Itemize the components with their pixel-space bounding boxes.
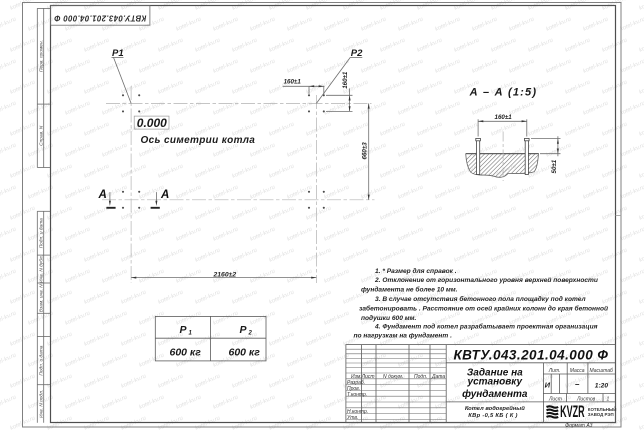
svg-text:kotel-kv.ru: kotel-kv.ru [120,289,148,306]
svg-text:kotel-kv.ru: kotel-kv.ru [194,247,222,264]
svg-text:kotel-kv.ru: kotel-kv.ru [286,352,314,369]
svg-text:Масштаб: Масштаб [590,368,614,374]
svg-text:kotel-kv.ru: kotel-kv.ru [323,16,351,33]
svg-text:Р: Р [180,324,188,336]
svg-text:kotel-kv.ru: kotel-kv.ru [83,373,111,390]
svg-text:Подп. и дата: Подп. и дата [38,345,44,375]
svg-text:kotel-kv.ru: kotel-kv.ru [83,121,111,138]
svg-text:kotel-kv.ru: kotel-kv.ru [212,16,240,33]
svg-text:kotel-kv.ru: kotel-kv.ru [212,184,240,201]
svg-text:kotel-kv.ru: kotel-kv.ru [638,331,644,348]
svg-text:kotel-kv.ru: kotel-kv.ru [249,184,277,201]
svg-text:kotel-kv.ru: kotel-kv.ru [268,121,296,138]
svg-text:kotel-kv.ru: kotel-kv.ru [83,37,111,54]
svg-text:kotel-kv.ru: kotel-kv.ru [64,226,92,243]
svg-text:kotel-kv.ru: kotel-kv.ru [527,121,555,138]
svg-text:600 кг: 600 кг [229,346,261,358]
svg-text:ЗАВОД РЭП: ЗАВОД РЭП [588,412,614,417]
svg-text:kotel-kv.ru: kotel-kv.ru [323,352,351,369]
svg-text:kotel-kv.ru: kotel-kv.ru [0,226,18,243]
svg-text:2160±2: 2160±2 [213,272,237,279]
svg-text:kotel-kv.ru: kotel-kv.ru [157,247,185,264]
svg-text:kotel-kv.ru: kotel-kv.ru [175,100,203,117]
svg-text:660±3: 660±3 [361,142,368,160]
svg-text:kotel-kv.ru: kotel-kv.ru [138,268,166,285]
svg-text:Перв. примен.: Перв. примен. [38,40,44,72]
svg-text:kotel-kv.ru: kotel-kv.ru [268,37,296,54]
svg-text:kotel-kv.ru: kotel-kv.ru [638,415,644,430]
svg-text:kotel-kv.ru: kotel-kv.ru [471,226,499,243]
svg-text:kotel-kv.ru: kotel-kv.ru [453,205,481,222]
svg-text:kotel-kv.ru: kotel-kv.ru [268,289,296,306]
svg-text:kotel-kv.ru: kotel-kv.ru [434,184,462,201]
svg-text:kotel-kv.ru: kotel-kv.ru [175,16,203,33]
svg-text:kotel-kv.ru: kotel-kv.ru [9,373,37,390]
svg-text:kotel-kv.ru: kotel-kv.ru [638,37,644,54]
svg-text:kotel-kv.ru: kotel-kv.ru [564,79,592,96]
svg-text:kotel-kv.ru: kotel-kv.ru [249,100,277,117]
svg-text:kotel-kv.ru: kotel-kv.ru [323,100,351,117]
svg-text:Формат А3: Формат А3 [565,423,593,429]
svg-text:kotel-kv.ru: kotel-kv.ru [582,16,610,33]
svg-text:kotel-kv.ru: kotel-kv.ru [638,163,644,180]
svg-text:kotel-kv.ru: kotel-kv.ru [120,247,148,264]
svg-text:kotel-kv.ru: kotel-kv.ru [64,310,92,327]
svg-text:КВр -0,5 КБ ( К ): КВр -0,5 КБ ( К ) [468,413,518,419]
svg-text:kotel-kv.ru: kotel-kv.ru [9,289,37,306]
svg-text:kotel-kv.ru: kotel-kv.ru [453,37,481,54]
svg-text:kotel-kv.ru: kotel-kv.ru [101,352,129,369]
svg-text:kotel-kv.ru: kotel-kv.ru [0,184,18,201]
svg-text:Ось симетрии котла: Ось симетрии котла [141,135,256,146]
svg-text:kotel-kv.ru: kotel-kv.ru [508,142,536,159]
svg-text:kotel-kv.ru: kotel-kv.ru [490,247,518,264]
svg-text:kotel-kv.ru: kotel-kv.ru [268,247,296,264]
svg-text:А: А [160,189,169,201]
svg-text:kotel-kv.ru: kotel-kv.ru [9,205,37,222]
svg-text:kotel-kv.ru: kotel-kv.ru [490,205,518,222]
svg-text:kotel-kv.ru: kotel-kv.ru [416,121,444,138]
svg-text:Котел водогрейный: Котел водогрейный [465,405,525,412]
svg-text:kotel-kv.ru: kotel-kv.ru [360,226,388,243]
svg-text:kotel-kv.ru: kotel-kv.ru [64,184,92,201]
svg-text:1: 1 [189,331,193,337]
svg-text:kotel-kv.ru: kotel-kv.ru [323,142,351,159]
svg-text:kotel-kv.ru: kotel-kv.ru [360,184,388,201]
svg-text:kotel-kv.ru: kotel-kv.ru [231,373,259,390]
svg-text:kotel-kv.ru: kotel-kv.ru [0,58,18,75]
svg-text:kotel-kv.ru: kotel-kv.ru [564,205,592,222]
svg-text:kotel-kv.ru: kotel-kv.ru [582,100,610,117]
svg-text:kotel-kv.ru: kotel-kv.ru [434,226,462,243]
svg-text:kotel-kv.ru: kotel-kv.ru [360,58,388,75]
svg-text:Взам. инв. N: Взам. инв. N [38,284,44,312]
svg-text:kotel-kv.ru: kotel-kv.ru [175,226,203,243]
svg-text:–: – [575,380,580,389]
svg-text:kotel-kv.ru: kotel-kv.ru [619,394,644,411]
svg-text:kotel-kv.ru: kotel-kv.ru [138,226,166,243]
svg-text:kotel-kv.ru: kotel-kv.ru [397,58,425,75]
svg-text:kotel-kv.ru: kotel-kv.ru [305,331,333,348]
svg-text:kotel-kv.ru: kotel-kv.ru [453,247,481,264]
svg-text:kotel-kv.ru: kotel-kv.ru [453,331,481,348]
svg-text:фундамента: фундамента [462,388,528,400]
svg-text:kotel-kv.ru: kotel-kv.ru [434,100,462,117]
svg-text:Листов: Листов [576,396,596,402]
svg-text:фундамента не более 10 мм.: фундамента не более 10 мм. [361,286,458,294]
svg-text:kotel-kv.ru: kotel-kv.ru [101,226,129,243]
svg-text:kotel-kv.ru: kotel-kv.ru [360,16,388,33]
svg-text:kotel-kv.ru: kotel-kv.ru [434,394,462,411]
svg-text:kotel-kv.ru: kotel-kv.ru [379,247,407,264]
svg-text:kotel-kv.ru: kotel-kv.ru [120,205,148,222]
svg-text:kotel-kv.ru: kotel-kv.ru [360,100,388,117]
svg-text:kotel-kv.ru: kotel-kv.ru [175,268,203,285]
svg-text:kotel-kv.ru: kotel-kv.ru [619,184,644,201]
svg-text:kotel-kv.ru: kotel-kv.ru [416,163,444,180]
svg-text:kotel-kv.ru: kotel-kv.ru [564,247,592,264]
svg-text:kotel-kv.ru: kotel-kv.ru [397,142,425,159]
svg-text:1. * Размер для справок .: 1. * Размер для справок . [375,267,457,275]
svg-text:kotel-kv.ru: kotel-kv.ru [619,16,644,33]
svg-text:kotel-kv.ru: kotel-kv.ru [342,163,370,180]
svg-text:1: 1 [607,396,610,402]
svg-text:kotel-kv.ru: kotel-kv.ru [397,226,425,243]
svg-text:kotel-kv.ru: kotel-kv.ru [638,289,644,306]
svg-text:kotel-kv.ru: kotel-kv.ru [582,142,610,159]
svg-text:50±1: 50±1 [551,159,558,173]
svg-text:kotel-kv.ru: kotel-kv.ru [9,121,37,138]
svg-text:kotel-kv.ru: kotel-kv.ru [305,79,333,96]
svg-text:kotel-kv.ru: kotel-kv.ru [397,100,425,117]
svg-text:Инв. N дубл.: Инв. N дубл. [38,255,44,283]
svg-text:KVZR: KVZR [560,403,585,421]
svg-text:kotel-kv.ru: kotel-kv.ru [231,205,259,222]
svg-text:kotel-kv.ru: kotel-kv.ru [9,331,37,348]
svg-text:kotel-kv.ru: kotel-kv.ru [305,247,333,264]
svg-text:kotel-kv.ru: kotel-kv.ru [434,58,462,75]
svg-text:kotel-kv.ru: kotel-kv.ru [120,331,148,348]
svg-text:kotel-kv.ru: kotel-kv.ru [157,205,185,222]
svg-text:kotel-kv.ru: kotel-kv.ru [564,163,592,180]
svg-text:kotel-kv.ru: kotel-kv.ru [360,352,388,369]
svg-text:kotel-kv.ru: kotel-kv.ru [286,142,314,159]
svg-text:kotel-kv.ru: kotel-kv.ru [490,163,518,180]
svg-text:kotel-kv.ru: kotel-kv.ru [268,331,296,348]
svg-text:kotel-kv.ru: kotel-kv.ru [212,58,240,75]
svg-text:kotel-kv.ru: kotel-kv.ru [416,205,444,222]
svg-text:А: А [98,189,107,201]
svg-text:kotel-kv.ru: kotel-kv.ru [9,163,37,180]
svg-text:kotel-kv.ru: kotel-kv.ru [564,331,592,348]
svg-text:kotel-kv.ru: kotel-kv.ru [508,226,536,243]
svg-text:kotel-kv.ru: kotel-kv.ru [416,37,444,54]
svg-text:kotel-kv.ru: kotel-kv.ru [305,163,333,180]
svg-text:kotel-kv.ru: kotel-kv.ru [397,16,425,33]
svg-text:kotel-kv.ru: kotel-kv.ru [471,184,499,201]
svg-text:160±1: 160±1 [342,71,349,89]
svg-text:по нагрузкам на фундамент .: по нагрузкам на фундамент . [354,332,453,340]
svg-text:kotel-kv.ru: kotel-kv.ru [212,394,240,411]
svg-text:kotel-kv.ru: kotel-kv.ru [527,205,555,222]
svg-text:kotel-kv.ru: kotel-kv.ru [508,16,536,33]
svg-text:kotel-kv.ru: kotel-kv.ru [619,100,644,117]
svg-text:kotel-kv.ru: kotel-kv.ru [249,226,277,243]
svg-text:kotel-kv.ru: kotel-kv.ru [638,121,644,138]
svg-text:kotel-kv.ru: kotel-kv.ru [379,163,407,180]
svg-text:kotel-kv.ru: kotel-kv.ru [490,331,518,348]
svg-text:kotel-kv.ru: kotel-kv.ru [545,16,573,33]
svg-text:Масса: Масса [570,368,585,374]
svg-text:2. Отклонение от горизонтально: 2. Отклонение от горизонтального уровня … [374,276,598,284]
svg-text:kotel-kv.ru: kotel-kv.ru [323,184,351,201]
svg-text:kotel-kv.ru: kotel-kv.ru [397,184,425,201]
svg-text:kotel-kv.ru: kotel-kv.ru [9,247,37,264]
svg-text:kotel-kv.ru: kotel-kv.ru [508,184,536,201]
svg-text:kotel-kv.ru: kotel-kv.ru [212,310,240,327]
svg-text:kotel-kv.ru: kotel-kv.ru [83,163,111,180]
svg-text:kotel-kv.ru: kotel-kv.ru [545,58,573,75]
svg-text:kotel-kv.ru: kotel-kv.ru [0,142,18,159]
svg-text:kotel-kv.ru: kotel-kv.ru [9,415,37,430]
svg-text:kotel-kv.ru: kotel-kv.ru [194,373,222,390]
svg-text:Подп.: Подп. [414,374,427,380]
svg-text:kotel-kv.ru: kotel-kv.ru [527,37,555,54]
svg-text:kotel-kv.ru: kotel-kv.ru [305,37,333,54]
svg-text:kotel-kv.ru: kotel-kv.ru [397,394,425,411]
svg-text:kotel-kv.ru: kotel-kv.ru [64,58,92,75]
svg-text:kotel-kv.ru: kotel-kv.ru [231,289,259,306]
svg-text:kotel-kv.ru: kotel-kv.ru [64,352,92,369]
svg-text:kotel-kv.ru: kotel-kv.ru [545,100,573,117]
svg-text:kotel-kv.ru: kotel-kv.ru [305,289,333,306]
svg-text:160±1: 160±1 [495,114,513,121]
svg-text:kotel-kv.ru: kotel-kv.ru [619,142,644,159]
svg-text:3. В случае отсутствия бетонно: 3. В случае отсутствия бетонного пола пл… [375,295,586,303]
svg-text:600 кг: 600 кг [170,346,202,358]
svg-text:kotel-kv.ru: kotel-kv.ru [138,58,166,75]
svg-text:kotel-kv.ru: kotel-kv.ru [83,289,111,306]
svg-text:kotel-kv.ru: kotel-kv.ru [305,121,333,138]
svg-text:kotel-kv.ru: kotel-kv.ru [416,247,444,264]
svg-text:Справ. N: Справ. N [38,125,44,146]
svg-text:kotel-kv.ru: kotel-kv.ru [249,394,277,411]
svg-text:Подп. и дата: Подп. и дата [38,218,44,248]
svg-text:kotel-kv.ru: kotel-kv.ru [619,310,644,327]
svg-text:Инв. N подл.: Инв. N подл. [38,390,44,418]
svg-text:kotel-kv.ru: kotel-kv.ru [101,142,129,159]
svg-text:kotel-kv.ru: kotel-kv.ru [0,310,18,327]
svg-text:kotel-kv.ru: kotel-kv.ru [619,268,644,285]
svg-text:160±1: 160±1 [284,79,302,86]
svg-text:kotel-kv.ru: kotel-kv.ru [120,37,148,54]
svg-text:kotel-kv.ru: kotel-kv.ru [0,100,18,117]
svg-text:kotel-kv.ru: kotel-kv.ru [619,352,644,369]
svg-text:kotel-kv.ru: kotel-kv.ru [157,373,185,390]
svg-text:kotel-kv.ru: kotel-kv.ru [619,58,644,75]
svg-text:1:20: 1:20 [595,383,609,390]
svg-text:kotel-kv.ru: kotel-kv.ru [212,226,240,243]
svg-text:kotel-kv.ru: kotel-kv.ru [9,0,37,12]
svg-text:2: 2 [248,331,253,337]
svg-text:kotel-kv.ru: kotel-kv.ru [231,163,259,180]
svg-text:забетонировать . Расстояние от: забетонировать . Расстояние от осей край… [359,304,608,312]
svg-text:kotel-kv.ru: kotel-kv.ru [101,268,129,285]
svg-text:kotel-kv.ru: kotel-kv.ru [194,163,222,180]
svg-text:kotel-kv.ru: kotel-kv.ru [286,268,314,285]
svg-text:kotel-kv.ru: kotel-kv.ru [83,79,111,96]
svg-text:kotel-kv.ru: kotel-kv.ru [564,121,592,138]
svg-text:kotel-kv.ru: kotel-kv.ru [64,394,92,411]
svg-text:kotel-kv.ru: kotel-kv.ru [268,205,296,222]
svg-text:kotel-kv.ru: kotel-kv.ru [638,247,644,264]
svg-text:kotel-kv.ru: kotel-kv.ru [379,121,407,138]
svg-text:kotel-kv.ru: kotel-kv.ru [175,58,203,75]
svg-text:kotel-kv.ru: kotel-kv.ru [231,79,259,96]
svg-text:kotel-kv.ru: kotel-kv.ru [323,310,351,327]
svg-text:kotel-kv.ru: kotel-kv.ru [101,310,129,327]
svg-text:kotel-kv.ru: kotel-kv.ru [286,100,314,117]
svg-text:kotel-kv.ru: kotel-kv.ru [379,205,407,222]
svg-text:kotel-kv.ru: kotel-kv.ru [286,310,314,327]
svg-text:kotel-kv.ru: kotel-kv.ru [619,226,644,243]
svg-text:kotel-kv.ru: kotel-kv.ru [120,163,148,180]
svg-text:Дата: Дата [431,374,445,380]
svg-text:kotel-kv.ru: kotel-kv.ru [0,352,18,369]
svg-text:kotel-kv.ru: kotel-kv.ru [101,100,129,117]
svg-text:kotel-kv.ru: kotel-kv.ru [416,79,444,96]
svg-text:Т.контр.: Т.контр. [347,392,367,398]
svg-text:И: И [545,381,551,390]
svg-text:подушки 600 мм.: подушки 600 мм. [361,314,416,322]
svg-text:kotel-kv.ru: kotel-kv.ru [471,16,499,33]
svg-text:kotel-kv.ru: kotel-kv.ru [9,79,37,96]
svg-text:kotel-kv.ru: kotel-kv.ru [268,373,296,390]
svg-text:kotel-kv.ru: kotel-kv.ru [508,58,536,75]
svg-text:kotel-kv.ru: kotel-kv.ru [120,79,148,96]
svg-text:kotel-kv.ru: kotel-kv.ru [138,100,166,117]
svg-text:установку: установку [467,376,523,387]
svg-text:kotel-kv.ru: kotel-kv.ru [638,373,644,390]
svg-text:kotel-kv.ru: kotel-kv.ru [138,310,166,327]
svg-text:kotel-kv.ru: kotel-kv.ru [323,268,351,285]
svg-text:kotel-kv.ru: kotel-kv.ru [286,226,314,243]
svg-text:kotel-kv.ru: kotel-kv.ru [508,100,536,117]
svg-text:kotel-kv.ru: kotel-kv.ru [249,58,277,75]
svg-text:kotel-kv.ru: kotel-kv.ru [342,247,370,264]
svg-text:kotel-kv.ru: kotel-kv.ru [231,37,259,54]
svg-text:Р: Р [240,324,248,336]
svg-text:kotel-kv.ru: kotel-kv.ru [453,121,481,138]
svg-text:kotel-kv.ru: kotel-kv.ru [545,142,573,159]
svg-text:kotel-kv.ru: kotel-kv.ru [305,373,333,390]
svg-text:kotel-kv.ru: kotel-kv.ru [194,37,222,54]
svg-text:kotel-kv.ru: kotel-kv.ru [9,37,37,54]
svg-text:kotel-kv.ru: kotel-kv.ru [434,142,462,159]
svg-text:kotel-kv.ru: kotel-kv.ru [175,394,203,411]
svg-text:kotel-kv.ru: kotel-kv.ru [249,268,277,285]
svg-text:kotel-kv.ru: kotel-kv.ru [64,142,92,159]
svg-text:kotel-kv.ru: kotel-kv.ru [379,79,407,96]
svg-text:kotel-kv.ru: kotel-kv.ru [194,205,222,222]
svg-text:4. Фундамент под котел разраба: 4. Фундамент под котел разрабатывает про… [374,323,598,331]
svg-text:kotel-kv.ru: kotel-kv.ru [564,37,592,54]
svg-text:kotel-kv.ru: kotel-kv.ru [527,373,555,390]
svg-text:kotel-kv.ru: kotel-kv.ru [157,289,185,306]
svg-text:kotel-kv.ru: kotel-kv.ru [286,58,314,75]
svg-text:kotel-kv.ru: kotel-kv.ru [638,205,644,222]
svg-text:kotel-kv.ru: kotel-kv.ru [471,58,499,75]
svg-text:kotel-kv.ru: kotel-kv.ru [342,121,370,138]
svg-text:kotel-kv.ru: kotel-kv.ru [379,37,407,54]
svg-text:kotel-kv.ru: kotel-kv.ru [83,331,111,348]
svg-text:kotel-kv.ru: kotel-kv.ru [582,226,610,243]
svg-text:kotel-kv.ru: kotel-kv.ru [582,184,610,201]
svg-text:Лит.: Лит. [548,368,561,374]
svg-text:kotel-kv.ru: kotel-kv.ru [194,79,222,96]
svg-text:kotel-kv.ru: kotel-kv.ru [286,16,314,33]
svg-text:0.000: 0.000 [137,116,167,130]
svg-text:kotel-kv.ru: kotel-kv.ru [138,394,166,411]
svg-text:kotel-kv.ru: kotel-kv.ru [83,247,111,264]
svg-text:kotel-kv.ru: kotel-kv.ru [101,394,129,411]
svg-text:kotel-kv.ru: kotel-kv.ru [0,268,18,285]
svg-text:kotel-kv.ru: kotel-kv.ru [157,79,185,96]
svg-text:kotel-kv.ru: kotel-kv.ru [157,163,185,180]
svg-text:kotel-kv.ru: kotel-kv.ru [157,37,185,54]
svg-text:Утв.: Утв. [347,415,358,421]
svg-text:kotel-kv.ru: kotel-kv.ru [397,352,425,369]
svg-text:kotel-kv.ru: kotel-kv.ru [249,310,277,327]
svg-text:kotel-kv.ru: kotel-kv.ru [490,121,518,138]
svg-text:А – А (1:5): А – А (1:5) [469,87,538,99]
svg-text:Лист: Лист [548,396,562,402]
svg-text:kotel-kv.ru: kotel-kv.ru [231,247,259,264]
svg-text:kotel-kv.ru: kotel-kv.ru [527,331,555,348]
svg-text:kotel-kv.ru: kotel-kv.ru [0,16,18,33]
svg-text:kotel-kv.ru: kotel-kv.ru [638,0,644,12]
svg-text:kotel-kv.ru: kotel-kv.ru [323,226,351,243]
svg-text:kotel-kv.ru: kotel-kv.ru [249,16,277,33]
svg-text:kotel-kv.ru: kotel-kv.ru [120,373,148,390]
svg-text:kotel-kv.ru: kotel-kv.ru [527,247,555,264]
svg-text:kotel-kv.ru: kotel-kv.ru [342,205,370,222]
svg-text:kotel-kv.ru: kotel-kv.ru [545,184,573,201]
svg-text:kotel-kv.ru: kotel-kv.ru [268,163,296,180]
svg-text:N докум.: N докум. [383,374,403,380]
svg-text:kotel-kv.ru: kotel-kv.ru [638,79,644,96]
svg-text:kotel-kv.ru: kotel-kv.ru [286,394,314,411]
svg-text:kotel-kv.ru: kotel-kv.ru [194,289,222,306]
svg-text:kotel-kv.ru: kotel-kv.ru [582,58,610,75]
svg-text:kotel-kv.ru: kotel-kv.ru [434,16,462,33]
svg-text:kotel-kv.ru: kotel-kv.ru [490,37,518,54]
svg-text:kotel-kv.ru: kotel-kv.ru [64,100,92,117]
svg-text:КВТУ.043.201.04.000 Ф: КВТУ.043.201.04.000 Ф [453,348,608,363]
svg-text:kotel-kv.ru: kotel-kv.ru [175,184,203,201]
svg-text:kotel-kv.ru: kotel-kv.ru [0,394,18,411]
svg-text:kotel-kv.ru: kotel-kv.ru [64,268,92,285]
svg-text:kotel-kv.ru: kotel-kv.ru [545,226,573,243]
svg-text:kotel-kv.ru: kotel-kv.ru [212,100,240,117]
svg-text:КВТУ.043.201.04.000 Ф: КВТУ.043.201.04.000 Ф [53,13,146,22]
